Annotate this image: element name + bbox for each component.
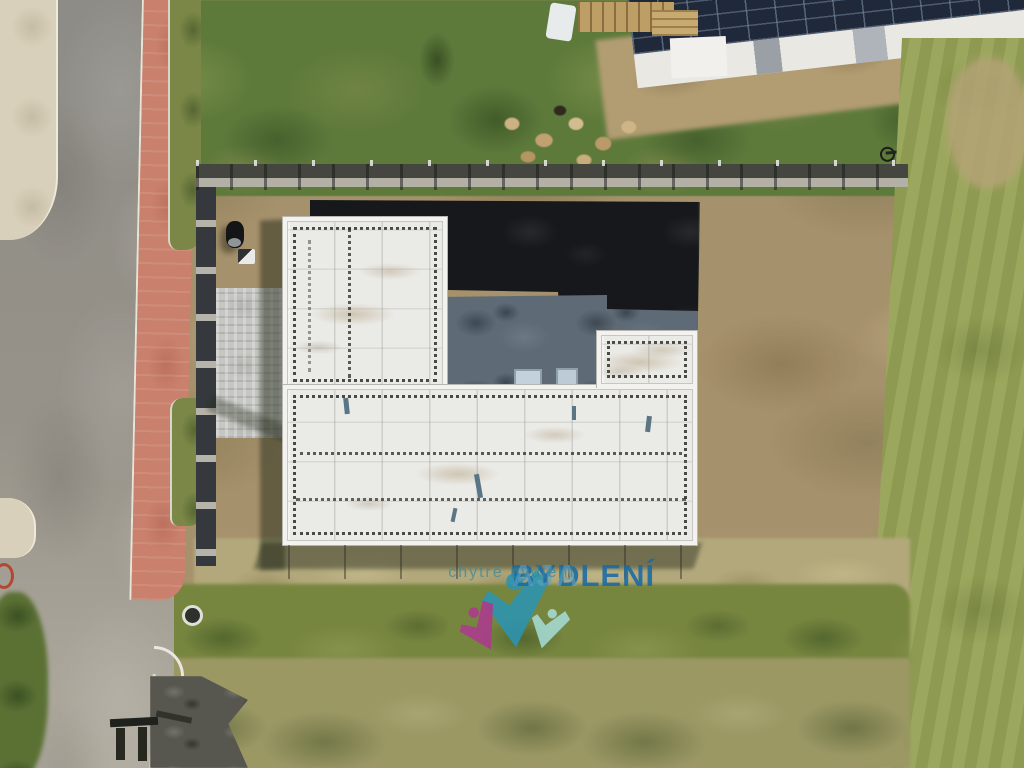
barrier-leg <box>138 727 147 761</box>
barrier-bar <box>110 717 158 728</box>
boundary-fence-gravel <box>196 164 908 190</box>
property-wall <box>196 178 216 566</box>
barrier-shadow <box>156 710 192 723</box>
flat-roof-wing-right <box>596 330 698 388</box>
roof-fastener-row <box>300 452 682 455</box>
sidewalk-top-left <box>0 0 58 240</box>
stacked-pallets <box>548 0 698 44</box>
dry-grass-patch <box>948 58 1024 188</box>
roof-material <box>572 406 576 420</box>
wooden-crate <box>652 10 698 36</box>
brand-tagline: chytré bydlení <box>448 564 576 582</box>
watermark-logo: BYDLENÍ AJA chytré bydlení <box>382 562 642 712</box>
roof-fastener-row <box>296 498 686 501</box>
roof-fastener-column <box>348 228 351 378</box>
road-barrier <box>104 712 194 768</box>
white-tarp <box>545 2 576 42</box>
black-barrel <box>226 221 244 248</box>
manhole <box>182 605 203 626</box>
barrier-leg <box>116 728 125 760</box>
roof-fastener-column <box>308 240 311 372</box>
aerial-photo: BYDLENÍ AJA chytré bydlení <box>0 0 1024 768</box>
utility-box <box>238 249 255 264</box>
flat-roof-wing-left <box>282 216 448 393</box>
